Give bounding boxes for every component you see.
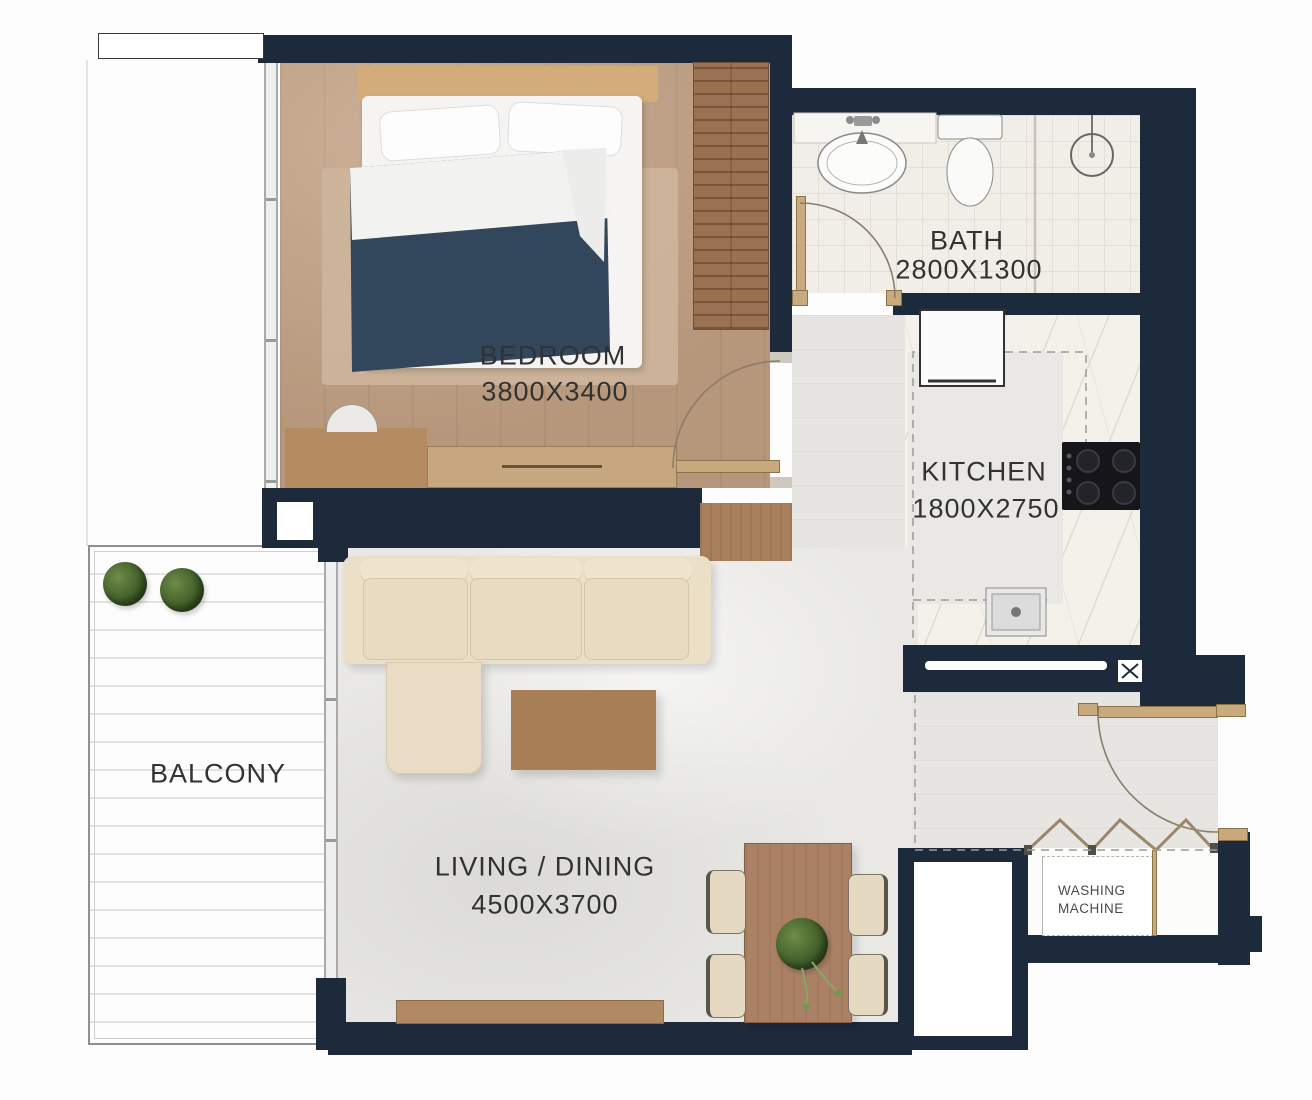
fridge <box>920 310 1004 386</box>
shower-drain-center <box>1089 152 1095 158</box>
hob-knob-3 <box>1067 478 1072 483</box>
bifold-post-3 <box>1210 843 1218 853</box>
bath-label: BATH <box>930 226 1004 257</box>
hob-burner-3 <box>1077 482 1099 504</box>
hob-knob-2 <box>1067 466 1072 471</box>
bifold-doors <box>1028 820 1214 850</box>
hob-burner-4 <box>1113 482 1135 504</box>
kitchen-label: KITCHEN <box>921 457 1047 488</box>
fixtures-overlay <box>0 0 1312 1100</box>
plant-sprig-2 <box>802 968 807 1006</box>
bath-faucet-handle-right <box>872 116 880 124</box>
hob-burner-1 <box>1077 450 1099 472</box>
floor-plan: BEDROOM 3800X3400 BATH 2800X1300 KITCHEN… <box>0 0 1312 1100</box>
bedroom-label: BEDROOM <box>480 341 627 372</box>
bath-door-arc <box>800 203 895 298</box>
washing-machine-label-line2: MACHINE <box>1058 900 1126 918</box>
hob-knob-1 <box>1067 454 1072 459</box>
plant-sprig-1 <box>812 962 838 992</box>
plant-leaf-2 <box>803 1004 810 1011</box>
bath-dimensions: 2800X1300 <box>895 255 1042 286</box>
entry-door-arc <box>1098 712 1218 832</box>
toilet-bowl <box>947 138 993 206</box>
living-dining-dimensions: 4500X3700 <box>471 890 618 921</box>
hob-burner-2 <box>1113 450 1135 472</box>
washing-machine-label-line1: WASHING <box>1058 882 1126 900</box>
balcony-label: BALCONY <box>150 759 286 790</box>
bedroom-door-arc <box>673 361 780 468</box>
plant-leaf-1 <box>835 990 842 997</box>
washing-machine-label: WASHING MACHINE <box>1058 882 1126 918</box>
bedroom-dimensions: 3800X3400 <box>481 377 628 408</box>
kitchen-dimensions: 1800X2750 <box>912 494 1059 525</box>
bath-faucet-handle-left <box>846 116 854 124</box>
kitchen-sink-faucet <box>1011 607 1021 617</box>
living-dining-label: LIVING / DINING <box>435 852 656 883</box>
hob-knob-4 <box>1067 490 1072 495</box>
bath-faucet <box>854 116 872 126</box>
toilet-tank <box>938 115 1002 139</box>
